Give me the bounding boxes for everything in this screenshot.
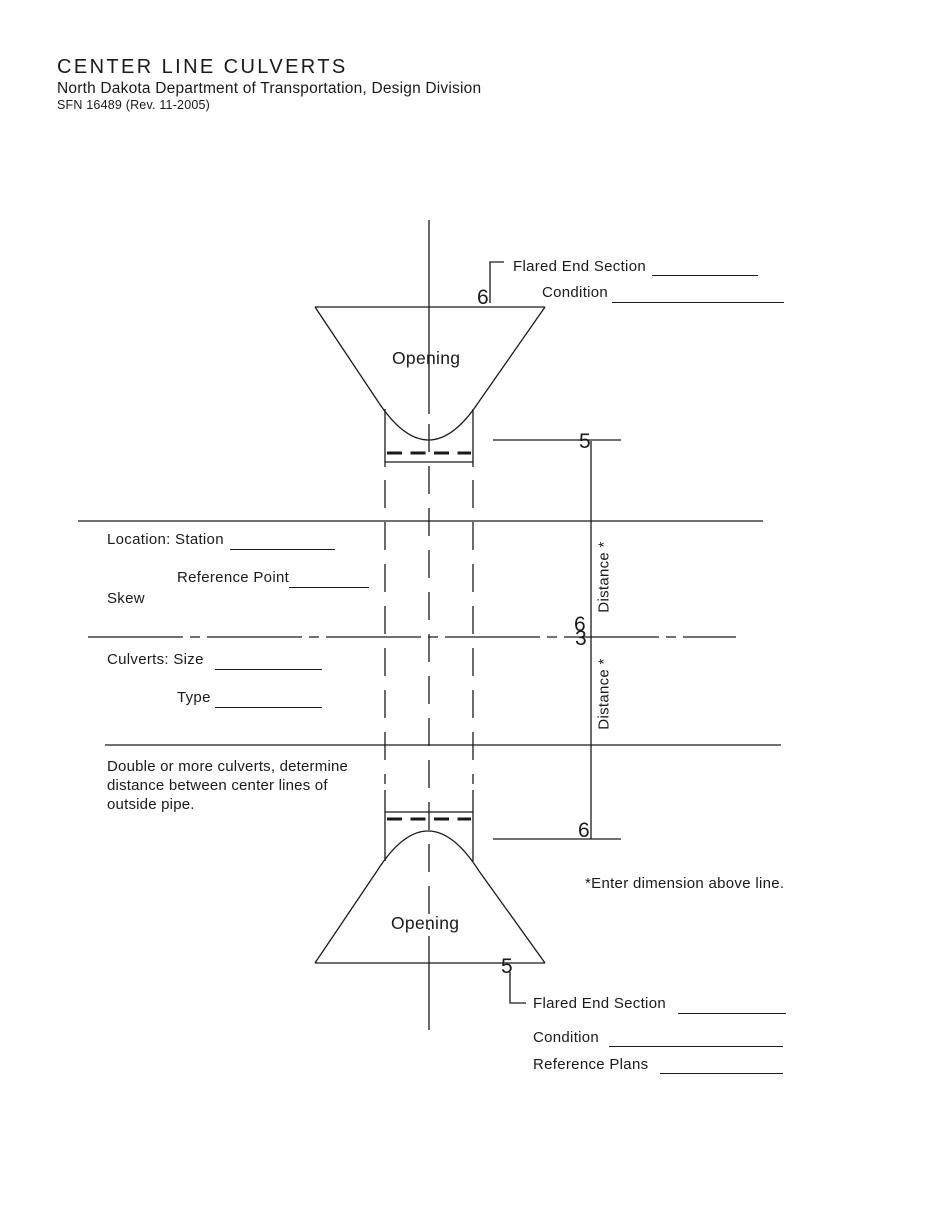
skew-label: Skew bbox=[107, 591, 145, 607]
culvert-centerline-diagram bbox=[0, 0, 950, 1230]
condition-field-top[interactable] bbox=[612, 289, 784, 303]
flared-end-section-field-top[interactable] bbox=[652, 262, 758, 276]
flared-end-section-field-bottom[interactable] bbox=[678, 1000, 786, 1014]
reference-plans-field[interactable] bbox=[660, 1060, 783, 1074]
bottom-funnel-dome-curve bbox=[377, 831, 479, 871]
location-station-label: Location: Station bbox=[107, 532, 224, 548]
station-field[interactable] bbox=[230, 536, 335, 550]
multi-culvert-note-line-3: outside pipe. bbox=[107, 795, 195, 814]
multi-culvert-note-line-2: distance between center lines of bbox=[107, 776, 328, 795]
top-funnel-right-slope bbox=[478, 307, 545, 403]
flared-end-section-label-bottom: Flared End Section bbox=[533, 996, 666, 1012]
form-page: { "header": { "title": "CENTER LINE CULV… bbox=[0, 0, 950, 1230]
opening-label-top: Opening bbox=[392, 350, 460, 366]
condition-field-bottom[interactable] bbox=[609, 1033, 783, 1047]
opening-label-bottom: Opening bbox=[391, 915, 459, 931]
top-flared-leader-line bbox=[490, 262, 504, 303]
reference-plans-label: Reference Plans bbox=[533, 1057, 648, 1073]
distance-label-lower: Distance * bbox=[596, 658, 613, 729]
culverts-size-label: Culverts: Size bbox=[107, 652, 204, 668]
bottom-funnel-left-slope bbox=[315, 871, 377, 963]
type-label: Type bbox=[177, 690, 211, 706]
dimension-footnote: *Enter dimension above line. bbox=[585, 876, 784, 892]
bottom-funnel-right-slope bbox=[479, 871, 545, 963]
condition-label-bottom: Condition bbox=[533, 1030, 599, 1046]
type-field[interactable] bbox=[215, 694, 322, 708]
ref-number-5-top: 5 bbox=[579, 431, 591, 453]
flared-end-section-label-top: Flared End Section bbox=[513, 259, 646, 275]
reference-point-label: Reference Point bbox=[177, 570, 289, 586]
multi-culvert-note-line-1: Double or more culverts, determine bbox=[107, 757, 348, 776]
distance-label-upper: Distance * bbox=[596, 541, 613, 612]
ref-number-6-bottom: 6 bbox=[578, 820, 590, 842]
ref-number-6-top: 6 bbox=[477, 287, 489, 309]
condition-label-top: Condition bbox=[542, 285, 608, 301]
reference-point-field[interactable] bbox=[289, 574, 369, 588]
ref-number-5-bottom: 5 bbox=[501, 956, 513, 978]
ref-number-3-middle: 3 bbox=[575, 628, 587, 650]
top-funnel-left-slope bbox=[315, 307, 379, 403]
size-field[interactable] bbox=[215, 656, 322, 670]
